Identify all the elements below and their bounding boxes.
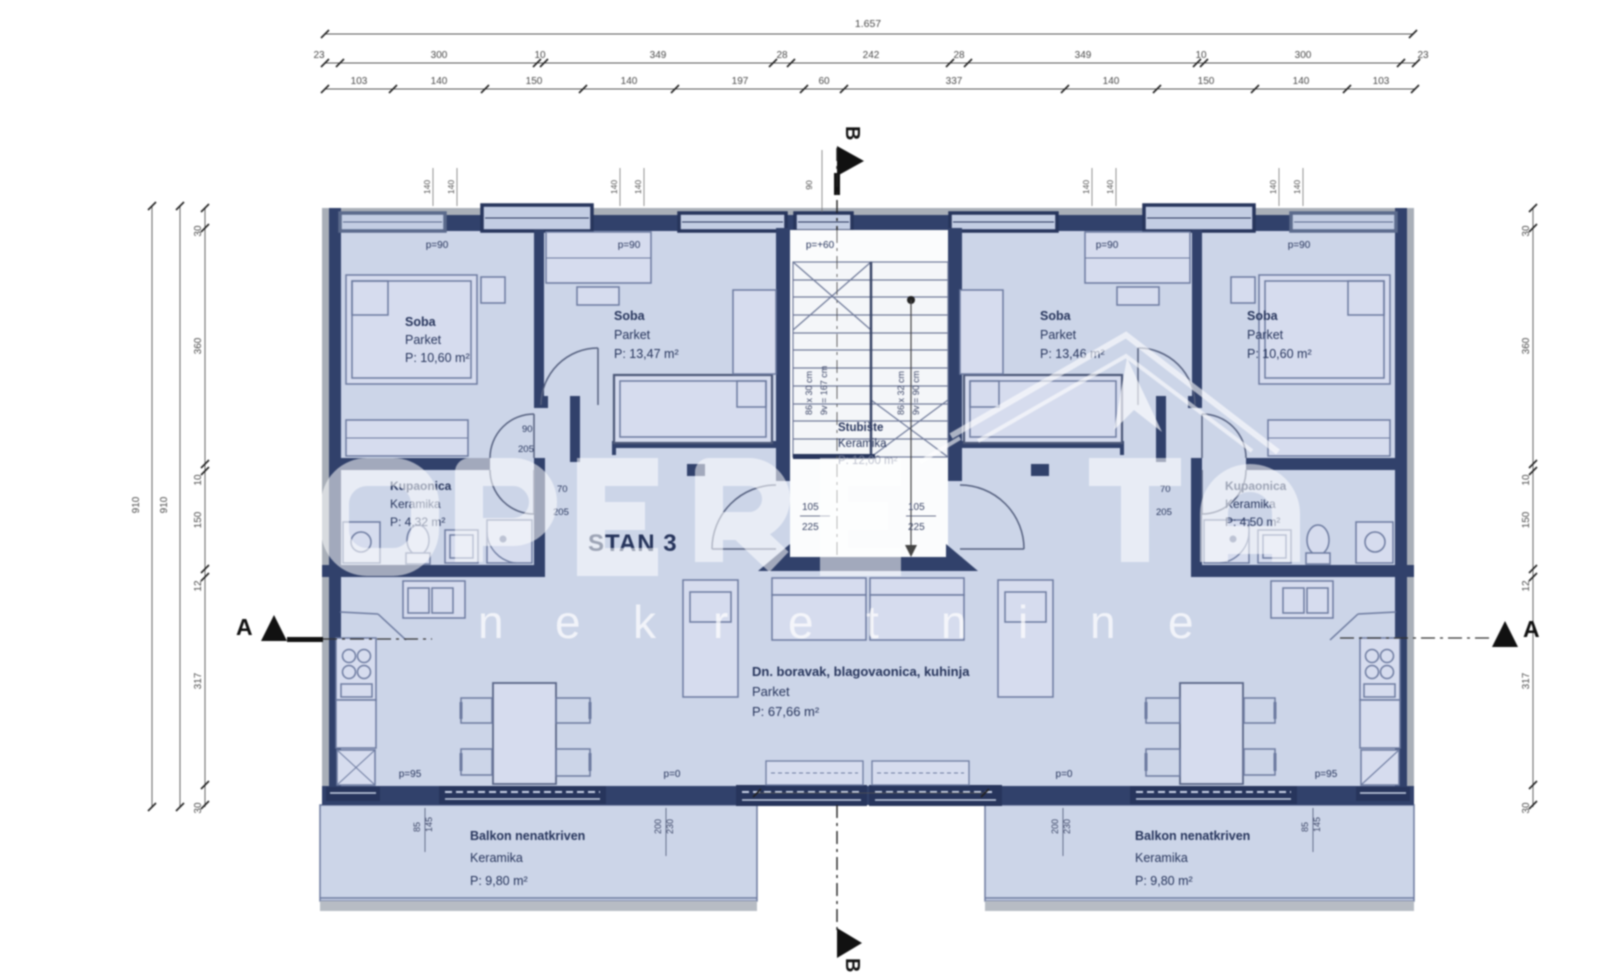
svg-text:9v = 90 cm: 9v = 90 cm [911, 371, 921, 415]
svg-text:145: 145 [424, 817, 434, 832]
svg-text:30: 30 [1521, 225, 1532, 237]
svg-text:140: 140 [1103, 76, 1120, 87]
svg-text:140: 140 [621, 76, 638, 87]
svg-text:P: 9,80 m²: P: 9,80 m² [1135, 874, 1193, 888]
svg-text:140: 140 [633, 180, 643, 194]
svg-text:p=90: p=90 [1288, 240, 1311, 251]
svg-text:A: A [1523, 616, 1540, 642]
svg-text:n: n [941, 596, 967, 648]
svg-text:140: 140 [1081, 180, 1091, 194]
svg-text:150: 150 [526, 76, 543, 87]
svg-text:90: 90 [522, 424, 533, 435]
svg-text:140: 140 [1292, 180, 1302, 194]
svg-text:225: 225 [802, 522, 819, 533]
svg-text:1.657: 1.657 [855, 18, 881, 30]
svg-text:Keramika: Keramika [838, 438, 887, 450]
svg-text:Dn. boravak, blagovaonica, kuh: Dn. boravak, blagovaonica, kuhinja [752, 664, 970, 679]
svg-text:Keramika: Keramika [1135, 851, 1188, 865]
svg-text:140: 140 [422, 180, 432, 194]
svg-text:85: 85 [1300, 822, 1310, 832]
svg-text:105: 105 [908, 502, 925, 513]
svg-text:Balkon nenatkriven: Balkon nenatkriven [1135, 829, 1250, 843]
svg-text:12: 12 [193, 580, 204, 592]
svg-text:300: 300 [1295, 50, 1312, 61]
svg-text:P: 10,60 m²: P: 10,60 m² [1247, 347, 1312, 361]
svg-text:n: n [478, 596, 504, 648]
svg-text:150: 150 [1198, 76, 1215, 87]
svg-text:r: r [713, 596, 728, 648]
svg-text:p=95: p=95 [399, 769, 422, 780]
svg-text:90: 90 [804, 180, 814, 190]
svg-text:349: 349 [1075, 50, 1092, 61]
svg-text:Parket: Parket [1040, 328, 1077, 342]
svg-text:10: 10 [534, 50, 546, 61]
svg-text:28: 28 [776, 50, 788, 61]
svg-text:p=90: p=90 [618, 240, 641, 251]
svg-text:205: 205 [1156, 507, 1172, 518]
svg-text:205: 205 [518, 444, 534, 455]
svg-text:30: 30 [193, 225, 204, 237]
svg-text:337: 337 [946, 76, 963, 87]
svg-text:349: 349 [650, 50, 667, 61]
svg-text:e: e [1168, 596, 1194, 648]
svg-text:e: e [555, 596, 581, 648]
svg-text:i: i [1018, 596, 1028, 648]
svg-text:70: 70 [557, 484, 568, 495]
svg-text:145: 145 [1312, 817, 1322, 832]
svg-text:360: 360 [193, 337, 204, 354]
svg-text:P: 13,47 m²: P: 13,47 m² [614, 347, 679, 361]
svg-text:60: 60 [818, 76, 830, 87]
svg-text:n: n [1090, 596, 1116, 648]
svg-text:k: k [633, 596, 657, 648]
svg-text:Balkon nenatkriven: Balkon nenatkriven [470, 829, 585, 843]
svg-text:P: 67,66 m²: P: 67,66 m² [752, 704, 820, 719]
svg-text:150: 150 [193, 511, 204, 528]
svg-text:140: 140 [1268, 180, 1278, 194]
svg-text:103: 103 [1373, 76, 1390, 87]
svg-text:85: 85 [412, 822, 422, 832]
svg-text:86 x 32 cm: 86 x 32 cm [896, 371, 906, 415]
svg-text:28: 28 [953, 50, 965, 61]
svg-text:140: 140 [1293, 76, 1310, 87]
svg-text:Keramika: Keramika [470, 851, 523, 865]
svg-text:p=+60: p=+60 [806, 240, 835, 251]
svg-text:Parket: Parket [614, 328, 651, 342]
svg-text:242: 242 [863, 50, 880, 61]
svg-text:Soba: Soba [405, 315, 437, 329]
svg-text:p=90: p=90 [1096, 240, 1119, 251]
svg-text:317: 317 [1521, 672, 1532, 689]
svg-text:200: 200 [1050, 819, 1060, 834]
svg-text:P: 9,80 m²: P: 9,80 m² [470, 874, 528, 888]
svg-text:Soba: Soba [614, 309, 646, 323]
svg-text:B: B [841, 126, 863, 140]
svg-text:300: 300 [431, 50, 448, 61]
svg-text:23: 23 [313, 50, 325, 61]
svg-text:105: 105 [802, 502, 819, 513]
svg-text:910: 910 [159, 496, 170, 513]
svg-text:230: 230 [665, 819, 675, 834]
svg-text:p=90: p=90 [426, 240, 449, 251]
svg-text:230: 230 [1062, 819, 1072, 834]
svg-text:A: A [236, 614, 253, 640]
svg-text:10: 10 [1521, 474, 1532, 486]
svg-text:10: 10 [193, 474, 204, 486]
svg-text:p=0: p=0 [664, 769, 681, 780]
svg-text:Soba: Soba [1040, 309, 1072, 323]
svg-text:910: 910 [131, 496, 142, 513]
svg-text:Parket: Parket [752, 684, 790, 699]
svg-text:103: 103 [351, 76, 368, 87]
svg-text:317: 317 [193, 672, 204, 689]
svg-text:197: 197 [732, 76, 749, 87]
svg-text:140: 140 [1105, 180, 1115, 194]
svg-text:10: 10 [1195, 50, 1207, 61]
svg-text:200: 200 [653, 819, 663, 834]
svg-text:9v = 167 cm: 9v = 167 cm [819, 366, 829, 415]
svg-text:150: 150 [1521, 511, 1532, 528]
svg-text:t: t [866, 596, 879, 648]
svg-text:p=0: p=0 [1056, 769, 1073, 780]
svg-text:e: e [788, 596, 814, 648]
svg-text:Parket: Parket [405, 333, 442, 347]
svg-text:140: 140 [431, 76, 448, 87]
svg-text:Stubište: Stubište [838, 422, 883, 434]
svg-text:Parket: Parket [1247, 328, 1284, 342]
svg-text:P: 10,60 m²: P: 10,60 m² [405, 351, 470, 365]
svg-text:B: B [841, 958, 863, 972]
svg-text:Soba: Soba [1247, 309, 1279, 323]
svg-text:p=95: p=95 [1315, 769, 1338, 780]
svg-text:23: 23 [1417, 50, 1429, 61]
svg-text:140: 140 [609, 180, 619, 194]
svg-text:30: 30 [193, 802, 204, 814]
svg-text:86 x 30 cm: 86 x 30 cm [804, 371, 814, 415]
svg-text:140: 140 [446, 180, 456, 194]
svg-text:30: 30 [1521, 802, 1532, 814]
svg-text:12: 12 [1521, 580, 1532, 592]
svg-text:225: 225 [908, 522, 925, 533]
svg-text:360: 360 [1521, 337, 1532, 354]
